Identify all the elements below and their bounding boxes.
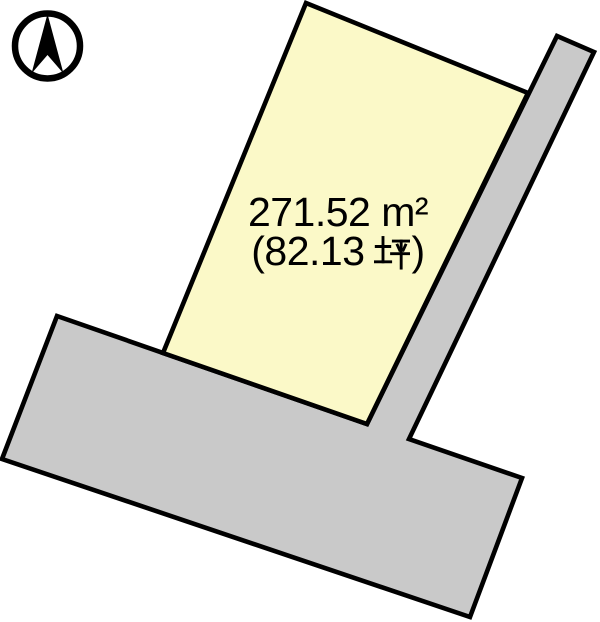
tsubo-character-icon: [374, 231, 410, 271]
plot-map-canvas: [0, 0, 600, 622]
area-tsubo-text: (82.13 ): [38, 231, 600, 271]
north-compass: [15, 14, 80, 79]
area-sqm-text: 271.52 m²: [38, 193, 600, 231]
land-plot-map: 271.52 m² (82.13 ): [0, 0, 600, 622]
area-tsubo-close: ): [412, 228, 425, 274]
area-tsubo-value: (82.13: [251, 228, 364, 274]
parcel-area-label: 271.52 m² (82.13 ): [38, 193, 600, 271]
